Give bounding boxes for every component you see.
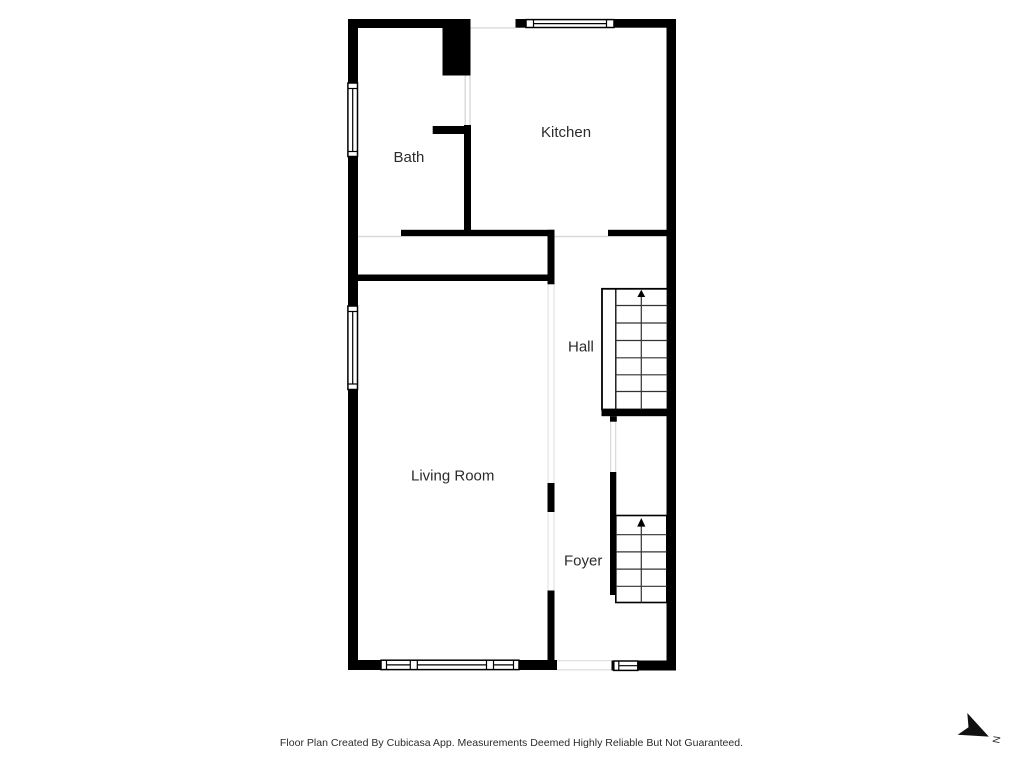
svg-text:Floor Plan Created By Cubicasa: Floor Plan Created By Cubicasa App. Meas… bbox=[280, 737, 743, 749]
svg-text:Bath: Bath bbox=[394, 149, 425, 166]
svg-text:Living Room: Living Room bbox=[411, 467, 494, 484]
svg-text:Kitchen: Kitchen bbox=[541, 124, 591, 141]
svg-text:Foyer: Foyer bbox=[564, 553, 602, 570]
svg-text:Hall: Hall bbox=[568, 339, 594, 356]
